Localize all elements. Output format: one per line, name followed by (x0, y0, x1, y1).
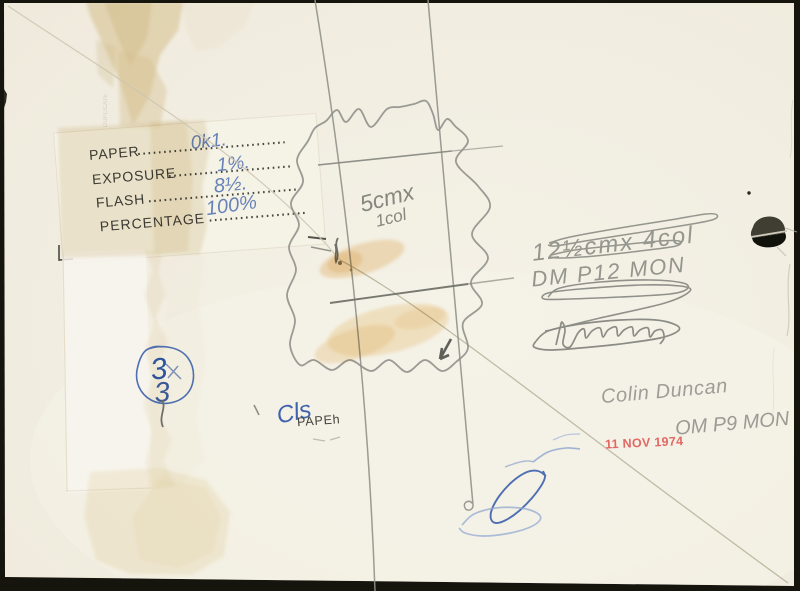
svg-text:DUPLICATE: DUPLICATE (103, 94, 109, 127)
